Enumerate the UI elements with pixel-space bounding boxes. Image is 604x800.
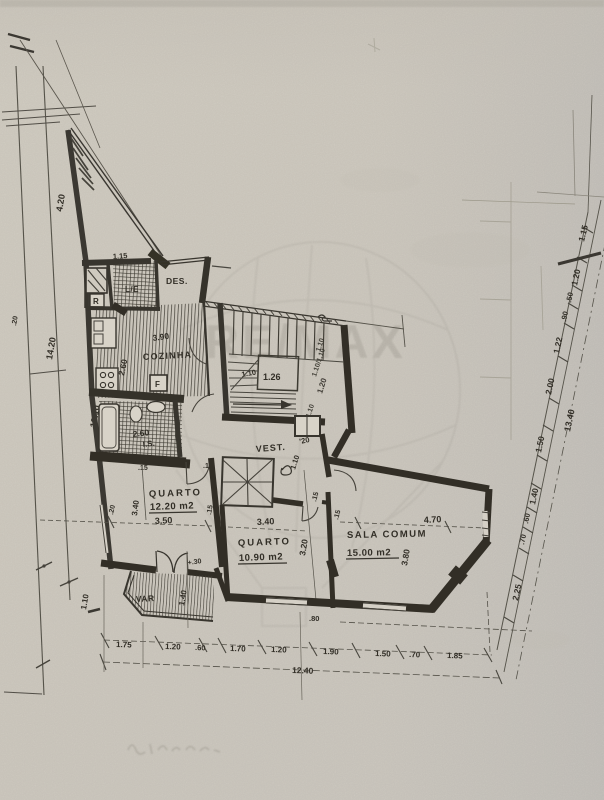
svg-text:1.20: 1.20 (165, 642, 181, 652)
svg-text:2.60: 2.60 (132, 427, 150, 439)
svg-text:.70: .70 (409, 650, 421, 659)
svg-text:1.15: 1.15 (113, 251, 128, 261)
svg-text:R: R (93, 297, 99, 306)
svg-text:1.20: 1.20 (271, 645, 287, 655)
svg-text:1.50: 1.50 (375, 649, 391, 659)
svg-text:I.S.: I.S. (142, 439, 155, 449)
svg-text:DES.: DES. (166, 276, 188, 286)
svg-text:QUARTO: QUARTO (149, 487, 202, 500)
svg-text:1.75: 1.75 (116, 640, 132, 650)
svg-text:QUARTO: QUARTO (238, 536, 291, 549)
svg-text:VAR: VAR (136, 593, 155, 604)
svg-text:12.20 m2: 12.20 m2 (150, 500, 195, 513)
svg-text:F: F (155, 380, 160, 389)
svg-text:15.00 m2: 15.00 m2 (347, 547, 391, 559)
svg-text:VEST.: VEST. (255, 442, 286, 454)
svg-text:.15: .15 (138, 465, 148, 472)
svg-text:1.26: 1.26 (263, 372, 281, 382)
svg-text:.80: .80 (309, 614, 319, 623)
svg-text:L/E: L/E (125, 285, 139, 294)
svg-text:1.90: 1.90 (323, 647, 339, 657)
svg-text:4.70: 4.70 (424, 514, 442, 525)
svg-text:SALA COMUM: SALA COMUM (347, 529, 427, 541)
svg-text:1.70: 1.70 (230, 644, 246, 654)
svg-text:12.40: 12.40 (292, 665, 314, 676)
svg-text:3.40: 3.40 (257, 516, 275, 527)
svg-text:1.85: 1.85 (447, 651, 463, 661)
svg-text:10.90 m2: 10.90 m2 (239, 551, 284, 564)
svg-text:.15: .15 (203, 463, 213, 470)
svg-text:.60: .60 (195, 643, 206, 652)
